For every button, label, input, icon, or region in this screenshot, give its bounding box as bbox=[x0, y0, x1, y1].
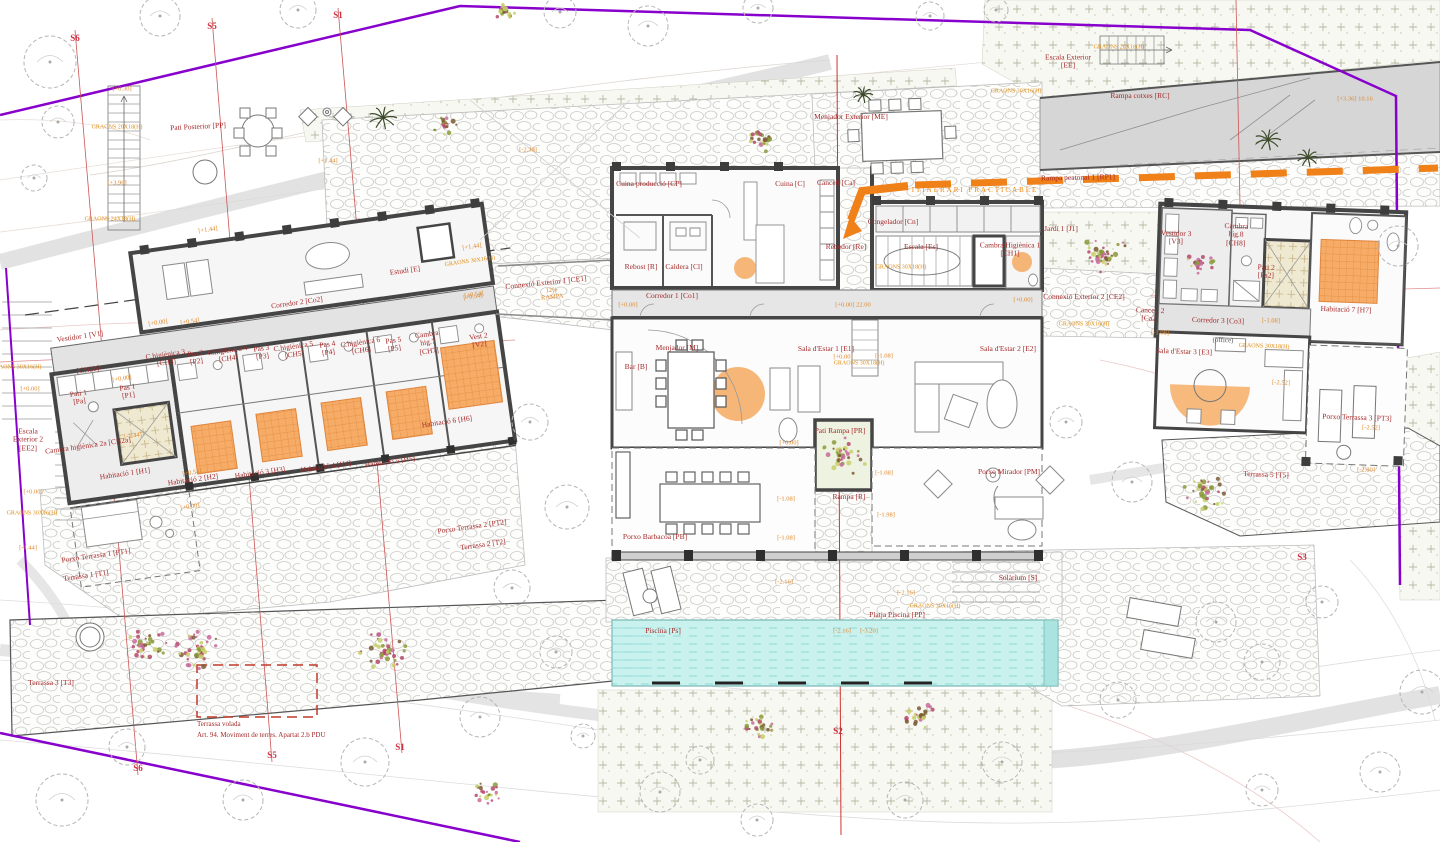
label-e-ce1: 12% RAMPA bbox=[540, 286, 564, 303]
label-connexio-1: Connexió Exterior 1 [CE1] bbox=[505, 275, 587, 292]
label-pas-2: Pas 2 [P2] bbox=[187, 349, 205, 368]
label-e-d3: [-1.08] bbox=[1262, 317, 1280, 325]
label-e-b2: [+3.96] bbox=[107, 179, 126, 186]
label-e-c2: [+0.00] 22.00 bbox=[835, 301, 871, 308]
label-e-a9: [+0.00] bbox=[23, 488, 42, 495]
label-menjador: Menjador [M] bbox=[656, 344, 699, 352]
label-porxo-mirador: Porxo Mirador [PM] bbox=[978, 468, 1040, 476]
label-cuina-produccio: Cuina producció [CP] bbox=[616, 180, 682, 188]
label-terrassa-volada-2: Art. 94. Moviment de terres. Apartat 2.b… bbox=[197, 732, 326, 740]
label-e-a4: [+0.00] bbox=[112, 374, 132, 384]
label-e-c10: [-1.08] bbox=[777, 495, 795, 502]
label-pati-2: Pati 2 [Pa2] bbox=[1257, 263, 1275, 280]
label-ch3: C.higiènica 3 [CH3] bbox=[145, 348, 187, 370]
label-vest-2: Vest 2 [V2] bbox=[469, 331, 490, 350]
label-pas-1: Pas 1 [P1] bbox=[119, 383, 137, 402]
label-s5-bottom: S5 bbox=[267, 750, 277, 760]
label-e-a6: [+0.54] bbox=[182, 468, 202, 478]
label-e-c15: [-3.20] bbox=[860, 627, 878, 634]
label-itinerari: ITINERARI PRACTICABLE bbox=[912, 187, 1039, 195]
label-escala-exterior: Escala Exterior [EE] bbox=[1045, 54, 1091, 71]
label-sala-estar-3: Sala d'Estar 3 [E3] bbox=[1156, 347, 1212, 357]
label-corredor-3: Corredor 3 [Co3] bbox=[1192, 316, 1244, 326]
label-s3-right: S3 bbox=[1297, 552, 1307, 562]
label-e-d5: [-2.80] bbox=[1357, 466, 1375, 473]
label-corredor-2: Corredor 2 [Co2] bbox=[271, 295, 324, 311]
label-e-a1: [+0.00] bbox=[148, 318, 168, 328]
label-s1-top: S1 bbox=[333, 10, 343, 20]
label-escala: Escala [Es] bbox=[904, 243, 938, 251]
label-office: (office) bbox=[1212, 337, 1233, 346]
label-g2: GRAONS 24X18(H) bbox=[85, 217, 136, 224]
label-e-c16: [-2.16] bbox=[897, 589, 915, 596]
label-porxo-terrassa-3: Porxo Terrassa 3 [PT3] bbox=[1322, 413, 1392, 424]
label-h3: Habitació 3 [H3] bbox=[234, 465, 286, 480]
label-pas-5: Pas 5 [P5] bbox=[385, 336, 403, 355]
label-g3: GRAONS 30X16(H) bbox=[0, 365, 41, 372]
label-g11: GRAONS 30X16(H) bbox=[991, 89, 1042, 96]
label-e-c8: [-1.08] bbox=[875, 469, 893, 476]
label-pati-posterior: Pati Posterior [PP] bbox=[170, 121, 226, 132]
label-rebedor: Rebedor [Re] bbox=[826, 243, 867, 251]
label-porxo-barbacoa: Porxo Barbacoa [PB] bbox=[623, 533, 687, 541]
label-cancell: Cancell [Ca] bbox=[817, 179, 855, 187]
label-pas-3: Pas 3 [P3] bbox=[253, 344, 271, 363]
label-platja-piscina: Platja Piscina [PP] bbox=[869, 611, 925, 619]
label-rebost: Rebost [R] bbox=[625, 263, 658, 271]
label-ch8: Cambra hig.8 [CH8] bbox=[1224, 222, 1249, 248]
label-rampa: Rampa [R] bbox=[832, 493, 865, 501]
label-rampa-peatonal: Rampa peatonal 1 [RP1] bbox=[1041, 173, 1115, 183]
label-e-a2: [+0.54] bbox=[180, 317, 200, 327]
label-e-d2: [-2.52] bbox=[1362, 424, 1380, 432]
label-h6: Habitació 6 [H6] bbox=[421, 414, 473, 429]
label-g5: GRAONS 30X16(H) bbox=[444, 255, 495, 269]
label-cuina: Cuina [C] bbox=[775, 180, 805, 188]
label-e-c11: [-1.08] bbox=[777, 534, 795, 541]
label-solarium: Solàrium [S] bbox=[999, 574, 1038, 582]
label-jardi-1: Jardí 1 [J1] bbox=[1044, 225, 1078, 233]
label-s5-top: S5 bbox=[207, 21, 217, 31]
label-sala-estar-1: Sala d'Estar 1 [E1] bbox=[798, 345, 854, 353]
label-h5: Habitació 5 [H5] bbox=[364, 454, 416, 469]
label-escala-exterior-2: Escala Exterior 2 [EE2] bbox=[13, 427, 43, 452]
label-h1: Habitació 1 [H1] bbox=[99, 466, 151, 481]
label-e-a10: [-1.44] bbox=[19, 544, 37, 551]
label-pati-rampa: Pati Rampa [PR] bbox=[815, 427, 866, 435]
label-s1-bottom: S1 bbox=[395, 742, 405, 752]
label-e-a5: [-1.44] bbox=[124, 431, 143, 441]
label-terrassa-volada-1: Terrassa volada bbox=[197, 721, 241, 729]
label-e-d4: [-1.08] bbox=[1151, 329, 1169, 337]
label-ch1: Cambra Higiènica 1 [CH1] bbox=[980, 242, 1040, 259]
label-terrassa-2: Terrassa 2 [T2] bbox=[460, 538, 506, 553]
label-g1: GRAONS 20X18(H) bbox=[92, 125, 143, 132]
label-pas-4: Pas 4 [P4] bbox=[319, 340, 337, 359]
label-porxo-terrassa-1: Porxo Terrassa 1 [PT1] bbox=[61, 547, 131, 565]
label-h7: Habitació 7 [H7] bbox=[1320, 305, 1371, 315]
label-g12: GRAONS 20X18(H) bbox=[1094, 45, 1145, 52]
label-congelador: Congelador [Cn] bbox=[868, 218, 919, 226]
label-sala-estar-2: Sala d'Estar 2 [E2] bbox=[980, 345, 1036, 353]
plan-labels: Vestidor 1 [V1][CH2b]Pati 1 [Pa]Pas 1 [P… bbox=[0, 0, 1440, 842]
label-porxo-terrassa-2: Porxo Terrassa 2 [PT2] bbox=[437, 518, 507, 536]
label-g9: GRAONS 30X16(H) bbox=[910, 604, 961, 611]
label-e-c6: [+0.00] bbox=[833, 353, 852, 360]
label-menjador-exterior: Menjador Exterior [ME] bbox=[814, 113, 888, 121]
label-e-c3: [+0.00] bbox=[1013, 296, 1032, 303]
label-ch5: C.higiènica 5 [CH5] bbox=[273, 340, 315, 362]
label-estudi: Estudi [E] bbox=[389, 265, 420, 278]
label-cancell-2: Cancell 2 [Ca2] bbox=[1135, 306, 1164, 324]
label-e-d1: [-2.52] bbox=[1272, 379, 1290, 387]
label-rampa-cotxes: Rampa cotxes [RC] bbox=[1110, 92, 1169, 100]
label-h2: Habitació 2 [H2] bbox=[167, 472, 219, 487]
label-e-b5: [+1.44] bbox=[462, 242, 482, 252]
label-bar: Bar [B] bbox=[625, 363, 648, 371]
label-e-a7: [+0.00] bbox=[180, 502, 200, 512]
label-ch7: Cambra hig.7 [CH7] bbox=[414, 329, 441, 357]
label-s6-top: S6 bbox=[70, 33, 80, 43]
label-e-c12: [+0.00] bbox=[779, 439, 798, 446]
label-ch2b: [CH2b] bbox=[76, 364, 100, 375]
label-terrassa-1: Terrassa 1 [T1] bbox=[63, 569, 109, 584]
label-e-b4: [+1.44] bbox=[198, 225, 218, 235]
label-terrassa-3: Terrassa 3 [T3] bbox=[28, 679, 74, 687]
label-g4: GRAONS 30X16(H) bbox=[7, 511, 58, 518]
label-e-c9: [-1.98] bbox=[877, 511, 895, 518]
label-ch4: C.higiènica 4 [CH4] bbox=[207, 344, 249, 366]
label-pati-1: Pati 1 [Pa] bbox=[69, 388, 88, 407]
label-e-a3: [+0.54] bbox=[464, 290, 484, 300]
label-piscina: Piscina [Ps] bbox=[645, 627, 681, 635]
label-e-b7: [-2.30] bbox=[519, 146, 537, 153]
label-caldera: Caldera [Cl] bbox=[665, 263, 702, 271]
label-e-b6: [+0.54] bbox=[463, 292, 483, 302]
label-g6: GRAONS 30X18(H) bbox=[876, 265, 927, 272]
label-e-a8: [+0.00] bbox=[20, 385, 39, 392]
label-h4: Habitació 4 [H4] bbox=[300, 459, 352, 474]
label-e-c14: [-2.16] bbox=[833, 627, 851, 634]
label-g8: GRAONS 30X18(H) bbox=[1238, 343, 1289, 351]
label-e-c7: [-1.08] bbox=[875, 352, 893, 359]
label-terrassa-5: Terrassa 5 [T5] bbox=[1243, 470, 1289, 480]
label-e-b3: [+1.44] bbox=[318, 157, 337, 164]
label-g10: GRAONS 30X16(H) bbox=[1059, 322, 1110, 329]
label-connexio-2: Connexió Exterior 2 [CE2] bbox=[1043, 293, 1124, 301]
label-ch6: C.higiènica 6 [CH6] bbox=[340, 336, 382, 358]
label-vestidor-1: Vestidor 1 [V1] bbox=[56, 330, 103, 345]
label-g7: GRAONS 30X18(H) bbox=[834, 361, 885, 368]
label-s2-bottom: S2 bbox=[833, 726, 843, 736]
label-e-c13: [-2.16] bbox=[775, 578, 793, 585]
site-plan: Vestidor 1 [V1][CH2b]Pati 1 [Pa]Pas 1 [P… bbox=[0, 0, 1440, 842]
label-e-b1: [+6.30] bbox=[112, 85, 131, 92]
label-vestidor-3: Vestidor 3 [V3] bbox=[1160, 229, 1191, 247]
label-e-c4: 12 % bbox=[883, 186, 897, 193]
label-e-c5: [+3.36] 10.16 bbox=[1337, 95, 1373, 102]
label-ch2a: Cambra higiènica 2a [CH2a] bbox=[45, 436, 132, 456]
label-corredor-1: Corredor 1 [Co1] bbox=[646, 292, 698, 300]
label-e-c1: [+0.00] bbox=[618, 301, 637, 308]
label-s6-bottom: S6 bbox=[133, 763, 143, 773]
